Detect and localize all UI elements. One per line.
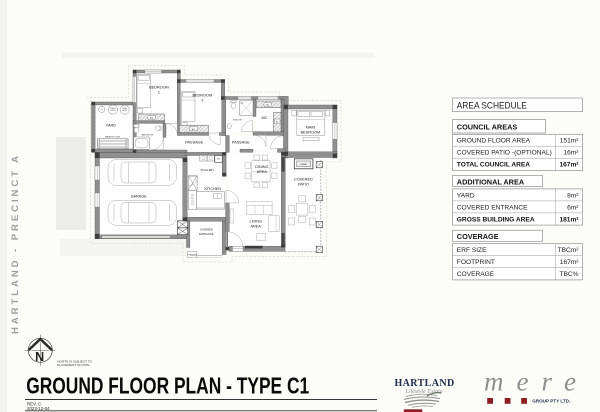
svg-text:ADDITIONAL AREA: ADDITIONAL AREA xyxy=(457,177,525,186)
svg-text:GARAGE: GARAGE xyxy=(131,195,148,199)
svg-text:2: 2 xyxy=(201,99,203,103)
svg-text:BATHROOM: BATHROOM xyxy=(142,133,154,136)
svg-text:PATIO: PATIO xyxy=(298,182,309,186)
svg-text:LIVING: LIVING xyxy=(249,220,261,224)
svg-text:181m²: 181m² xyxy=(559,216,579,223)
svg-text:BEDROOM: BEDROOM xyxy=(192,94,212,98)
svg-text:PASSAGE: PASSAGE xyxy=(185,141,203,145)
svg-text:167m²: 167m² xyxy=(559,162,579,169)
svg-text:SCULLERY: SCULLERY xyxy=(200,168,214,172)
svg-text:BEDROOM: BEDROOM xyxy=(301,131,321,135)
svg-text:6m²: 6m² xyxy=(567,204,579,211)
svg-text:COUNCIL AREAS: COUNCIL AREAS xyxy=(457,122,518,131)
svg-text:GROUND FLOOR PLAN - TYPE C1: GROUND FLOOR PLAN - TYPE C1 xyxy=(26,373,309,399)
svg-text:mere: mere xyxy=(484,367,589,397)
svg-text:COVERED: COVERED xyxy=(294,177,313,181)
svg-text:AREA SCHEDULE: AREA SCHEDULE xyxy=(457,101,527,112)
svg-text:16m²: 16m² xyxy=(563,150,579,157)
svg-text:COVERED PATIO -(OPTIONAL): COVERED PATIO -(OPTIONAL) xyxy=(457,150,552,157)
svg-text:KIVO: KIVO xyxy=(110,110,115,112)
svg-text:TBC%: TBC% xyxy=(559,271,578,278)
svg-text:TBCm²: TBCm² xyxy=(558,247,580,254)
svg-text:N: N xyxy=(35,350,44,364)
svg-text:AREA: AREA xyxy=(257,170,268,174)
svg-text:YARD: YARD xyxy=(106,123,117,127)
svg-text:8m²: 8m² xyxy=(567,192,579,199)
svg-text:FOOTPRINT: FOOTPRINT xyxy=(457,259,495,266)
svg-text:DINING: DINING xyxy=(255,165,268,169)
svg-text:1: 1 xyxy=(158,90,160,94)
svg-text:WC: WC xyxy=(261,116,268,120)
svg-text:COVERAGE: COVERAGE xyxy=(457,232,499,241)
svg-text:HARTLAND: HARTLAND xyxy=(395,378,455,389)
svg-text:HARTLAND - PRECINCT A: HARTLAND - PRECINCT A xyxy=(10,153,21,334)
svg-text:COVERED ENTRANCE: COVERED ENTRANCE xyxy=(457,204,528,211)
svg-text:BC: BC xyxy=(266,104,269,106)
svg-text:ERF SIZE: ERF SIZE xyxy=(457,247,487,254)
svg-text:AREA: AREA xyxy=(251,225,262,229)
svg-text:Lifestyle Estate: Lifestyle Estate xyxy=(405,388,443,395)
svg-text:COVERAGE: COVERAGE xyxy=(457,271,495,278)
svg-text:ENTRANCE: ENTRANCE xyxy=(199,232,214,236)
svg-text:PASSAGE: PASSAGE xyxy=(232,141,250,145)
svg-text:BEDROOM: BEDROOM xyxy=(149,85,169,89)
svg-text:GROSS BUILDING AREA: GROSS BUILDING AREA xyxy=(457,216,535,223)
svg-text:COVERED: COVERED xyxy=(200,228,213,232)
svg-text:167m²: 167m² xyxy=(560,259,579,266)
svg-text:KIVO: KIVO xyxy=(122,110,127,112)
svg-text:ENSUITE: ENSUITE xyxy=(233,119,243,121)
svg-text:GROUP PTY LTD.: GROUP PTY LTD. xyxy=(532,399,570,404)
svg-text:BIC: BIC xyxy=(150,117,154,119)
svg-text:BRAAI: BRAAI xyxy=(300,163,307,166)
svg-text:151m²: 151m² xyxy=(560,138,579,145)
svg-text:YARD: YARD xyxy=(457,192,475,199)
svg-text:BIC: BIC xyxy=(192,129,196,131)
svg-text:WASHING LINE: WASHING LINE xyxy=(105,136,121,139)
svg-text:MAIN: MAIN xyxy=(306,126,316,130)
svg-text:TOTAL COUNCIL AREA: TOTAL COUNCIL AREA xyxy=(457,162,531,169)
svg-text:BC: BC xyxy=(276,122,279,124)
svg-text:PLACEMENT ON SITE: PLACEMENT ON SITE xyxy=(57,363,89,367)
svg-text:GROUND FLOOR AREA: GROUND FLOOR AREA xyxy=(457,138,531,145)
svg-text:KITCHEN: KITCHEN xyxy=(204,187,221,191)
